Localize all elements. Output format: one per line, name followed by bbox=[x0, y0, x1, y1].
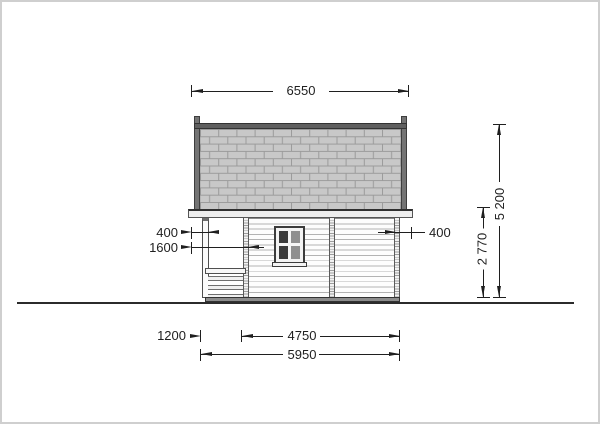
dim-line bbox=[242, 336, 286, 337]
dim-line bbox=[320, 336, 400, 337]
porch-railing-slats bbox=[208, 276, 243, 299]
window-mullion-horizontal bbox=[279, 243, 300, 246]
dim-tick bbox=[399, 349, 400, 361]
dim-line bbox=[201, 354, 286, 355]
porch-handrail bbox=[205, 268, 246, 274]
dim-porch-depth-label: 1200 bbox=[152, 329, 186, 343]
window-sill bbox=[272, 262, 307, 267]
corner-log-ends-middle bbox=[329, 218, 335, 298]
dim-tick bbox=[411, 227, 412, 239]
dim-total-height-label: 5 200 bbox=[493, 182, 507, 226]
dim-roof-width-label: 6550 bbox=[273, 84, 329, 98]
dim-porch-inset-label: 1600 bbox=[142, 241, 178, 255]
dim-main-length-label: 4750 bbox=[283, 329, 321, 343]
dim-line bbox=[319, 354, 400, 355]
dim-tick bbox=[477, 297, 490, 298]
dim-eave-overhang-right-label: 400 bbox=[429, 226, 465, 240]
dim-arrow-left bbox=[248, 245, 259, 249]
roof-barge-cap-right bbox=[401, 116, 407, 211]
dim-arrow-left bbox=[208, 230, 219, 234]
dim-total-length-label: 5950 bbox=[283, 348, 321, 362]
dim-wall-height-label: 2 770 bbox=[476, 229, 490, 270]
roof-shingles bbox=[200, 129, 401, 210]
dim-arrow-right bbox=[385, 230, 396, 234]
ground-line bbox=[17, 302, 574, 304]
elevation-drawing: 6550 400 1600 400 5 200 2 770 1200 4750 … bbox=[0, 0, 600, 424]
dim-tick bbox=[200, 330, 201, 342]
dim-arrow-down bbox=[481, 286, 485, 297]
dim-tick bbox=[399, 330, 400, 342]
dim-tick bbox=[493, 297, 506, 298]
dim-arrow-up bbox=[497, 124, 501, 135]
wall-logs bbox=[243, 218, 400, 298]
dim-arrow-down bbox=[497, 286, 501, 297]
roof-fascia bbox=[188, 209, 413, 218]
dim-arrow-up bbox=[481, 207, 485, 218]
corner-log-ends-left bbox=[243, 218, 249, 298]
dim-eave-overhang-left-label: 400 bbox=[146, 226, 178, 240]
dim-line bbox=[315, 91, 409, 92]
